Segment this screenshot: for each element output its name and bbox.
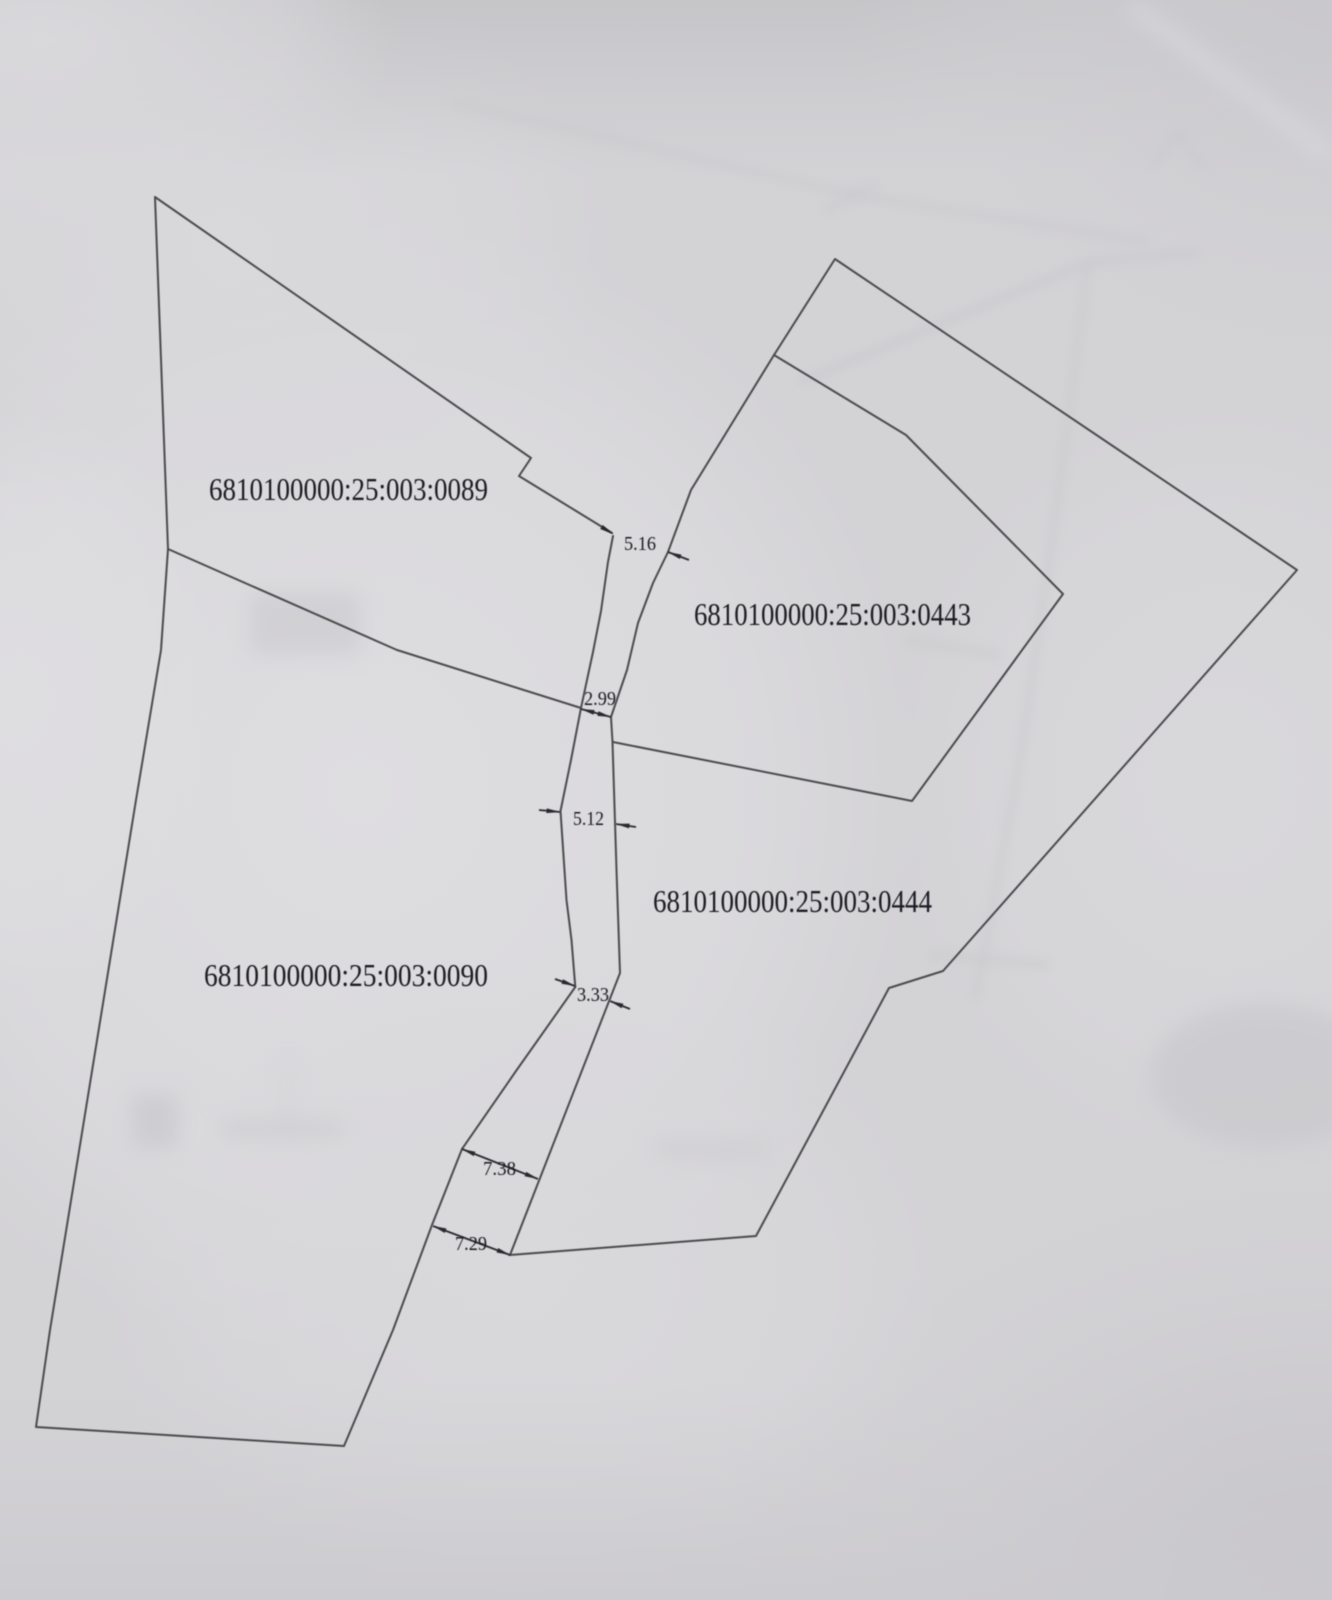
- svg-text:6810100000:25:003:0443: 6810100000:25:003:0443: [694, 596, 971, 632]
- svg-text:6810100000:25:003:0444: 6810100000:25:003:0444: [653, 883, 932, 919]
- svg-text:7.38: 7.38: [483, 1158, 516, 1180]
- svg-text:5.12: 5.12: [573, 808, 604, 830]
- svg-text:3.33: 3.33: [577, 984, 609, 1006]
- svg-text:6810100000:25:003:0090: 6810100000:25:003:0090: [204, 957, 488, 993]
- svg-text:2.99: 2.99: [584, 688, 616, 710]
- svg-text:6810100000:25:003:0089: 6810100000:25:003:0089: [209, 471, 488, 507]
- svg-text:5.16: 5.16: [624, 533, 656, 555]
- svg-text:7.29: 7.29: [455, 1233, 487, 1255]
